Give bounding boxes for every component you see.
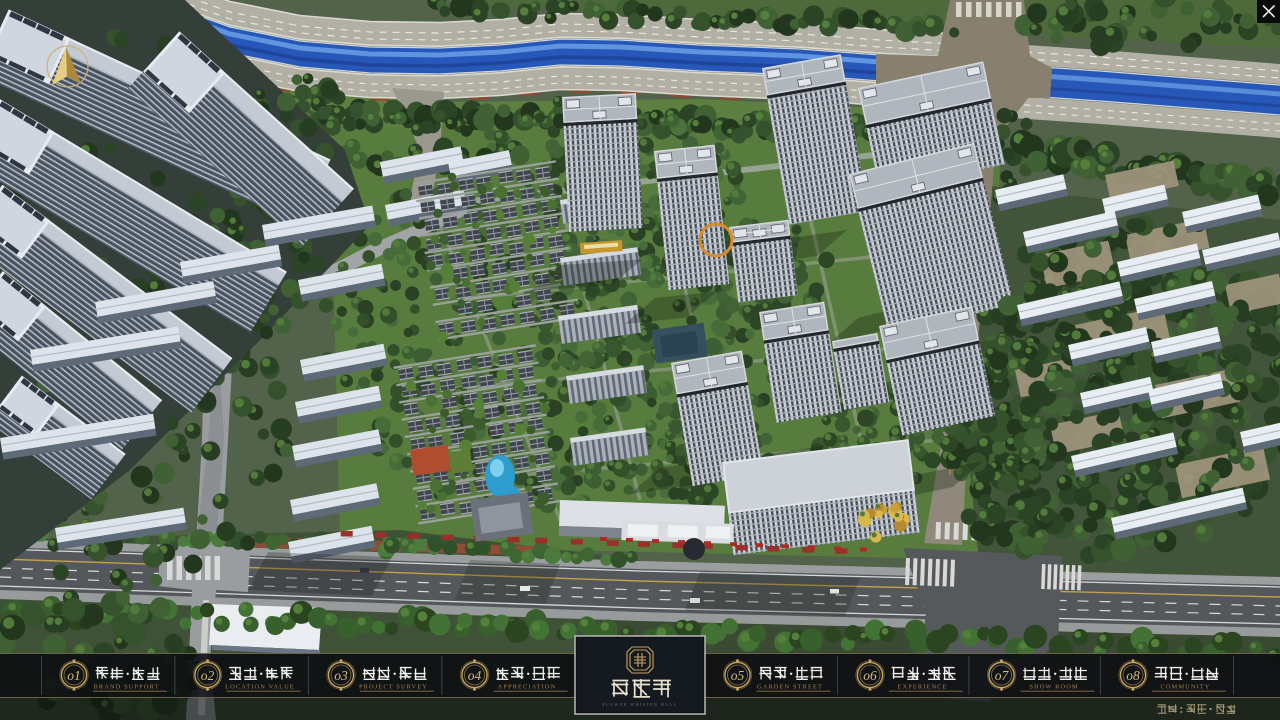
svg-text:GARDEN STREET: GARDEN STREET	[757, 684, 823, 691]
svg-text:APPRECIATION: APPRECIATION	[498, 684, 557, 691]
svg-text:SHOW ROOM: SHOW ROOM	[1029, 684, 1078, 691]
svg-text:BRAND SUPPORT: BRAND SUPPORT	[94, 684, 160, 691]
svg-text:FLOWER WHISPER HALL: FLOWER WHISPER HALL	[602, 702, 677, 707]
svg-text:o7: o7	[995, 668, 1010, 683]
svg-text:o3: o3	[334, 668, 348, 683]
svg-text:o4: o4	[468, 668, 482, 683]
svg-text:o8: o8	[1126, 668, 1140, 683]
svg-text:COMMUNITY: COMMUNITY	[1160, 684, 1210, 691]
svg-text:EXPERIENCE: EXPERIENCE	[897, 684, 947, 691]
svg-text:PROJECT SURVEY: PROJECT SURVEY	[359, 684, 428, 691]
svg-text:o1: o1	[67, 668, 81, 683]
svg-text:o6: o6	[863, 668, 877, 683]
svg-text:LOCATION VALUE: LOCATION VALUE	[225, 684, 295, 691]
svg-text:o2: o2	[201, 668, 215, 683]
svg-text:o5: o5	[731, 668, 745, 683]
